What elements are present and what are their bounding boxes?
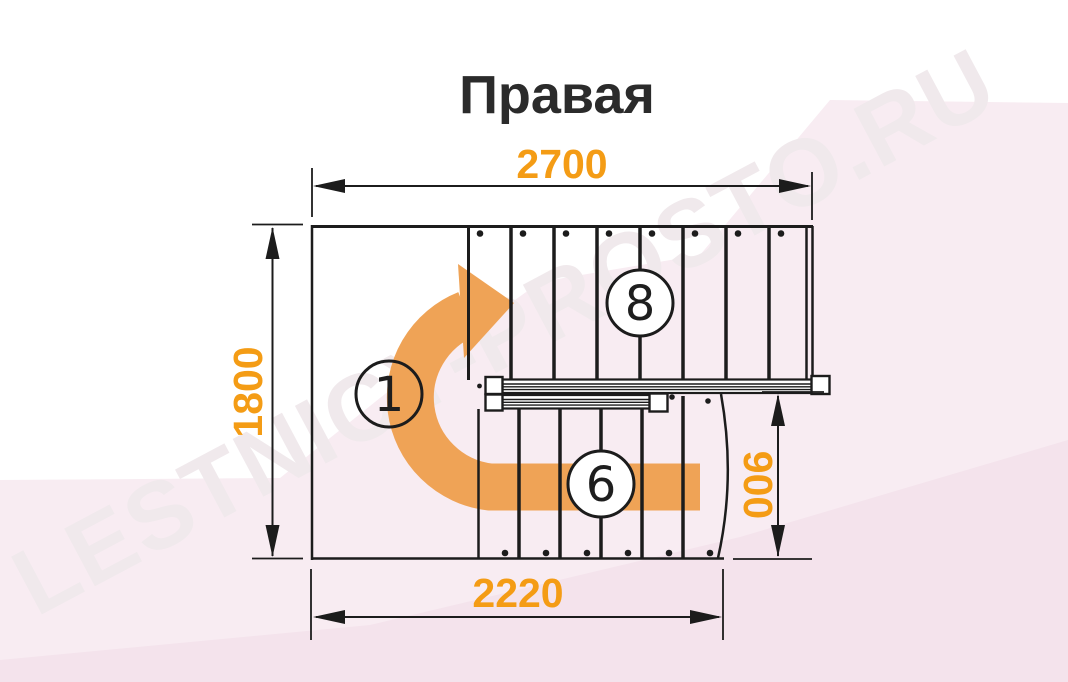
dimension-arrowhead-right — [779, 179, 811, 193]
dimension-bottom-value: 2220 — [472, 570, 563, 616]
railing-post-upper-left — [486, 377, 503, 394]
tread-dot — [692, 230, 699, 237]
tread-dot — [666, 550, 673, 557]
dimension-arrowhead-left — [313, 179, 345, 193]
railing-post-lower-right — [650, 394, 668, 412]
dimension-top-value: 2700 — [516, 141, 607, 187]
upper-flight-right-edge — [807, 226, 813, 379]
tread-dot — [606, 230, 613, 237]
tread-dot — [735, 230, 742, 237]
staircase-plan: LESTNICY-PROSTO.RU — [0, 0, 1068, 682]
tread-dot — [477, 230, 484, 237]
upper-flight-nosing-dots — [477, 230, 785, 237]
step-circle-1-label: 1 — [374, 367, 405, 423]
dimension-left-value: 1800 — [225, 346, 271, 437]
dimension-arrowhead-left — [313, 610, 345, 624]
dimension-arrowhead-top — [771, 394, 785, 426]
dimension-right-900: 900 — [733, 392, 824, 559]
railing-fixing-dot — [705, 398, 711, 404]
tread-dot — [707, 550, 714, 557]
dimension-arrowhead-top — [266, 227, 280, 259]
dimension-bottom-2220: 2220 — [311, 569, 723, 640]
step-circle-6-label: 6 — [586, 457, 617, 513]
tread-dot — [649, 230, 656, 237]
railing-fixing-dot — [477, 384, 482, 389]
tread-dot — [543, 550, 550, 557]
dimension-arrowhead-bottom — [771, 525, 785, 557]
step-circle-8-label: 8 — [625, 276, 656, 332]
dimension-arrowhead-right — [690, 610, 722, 624]
lower-flight-curved-edge — [718, 394, 728, 558]
diagram-title: Правая — [459, 65, 655, 125]
dimension-left-1800: 1800 — [225, 225, 303, 559]
dimension-top-2700: 2700 — [312, 141, 812, 220]
dimension-right-value: 900 — [735, 451, 781, 519]
step-circle-upper: 8 — [607, 270, 673, 336]
direction-arrow-head — [458, 264, 514, 358]
railing-fixing-dot — [669, 394, 675, 400]
dimension-arrowhead-bottom — [266, 525, 280, 557]
tread-dot — [520, 230, 527, 237]
tread-dot — [778, 230, 785, 237]
tread-dot — [563, 230, 570, 237]
tread-dot — [502, 550, 509, 557]
step-circle-lower: 6 — [568, 451, 634, 517]
tread-dot — [584, 550, 591, 557]
railing-post-lower-left — [486, 395, 503, 411]
tread-dot — [625, 550, 632, 557]
staircase-drawing: 8 1 6 2700 1800 — [0, 0, 1068, 682]
